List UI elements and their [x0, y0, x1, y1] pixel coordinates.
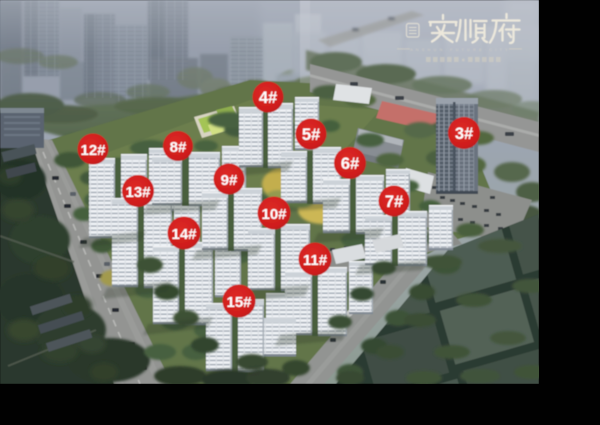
svg-text:6#: 6#: [341, 155, 359, 173]
svg-text:5#: 5#: [302, 126, 320, 144]
svg-text:11#: 11#: [303, 252, 328, 269]
svg-text:12#: 12#: [80, 142, 106, 159]
svg-text:4#: 4#: [259, 89, 277, 107]
svg-text:7#: 7#: [385, 193, 403, 211]
svg-text:3#: 3#: [455, 125, 473, 143]
svg-text:13#: 13#: [125, 184, 151, 201]
svg-text:A N S H U N · F U T U R E · C: A N S H U N · F U T U R E · C I T Y: [410, 48, 509, 52]
svg-text:14#: 14#: [171, 226, 197, 243]
svg-text:10#: 10#: [261, 206, 287, 223]
svg-text:9#: 9#: [221, 172, 238, 189]
svg-text:15#: 15#: [226, 294, 252, 311]
svg-text:8#: 8#: [170, 139, 187, 156]
